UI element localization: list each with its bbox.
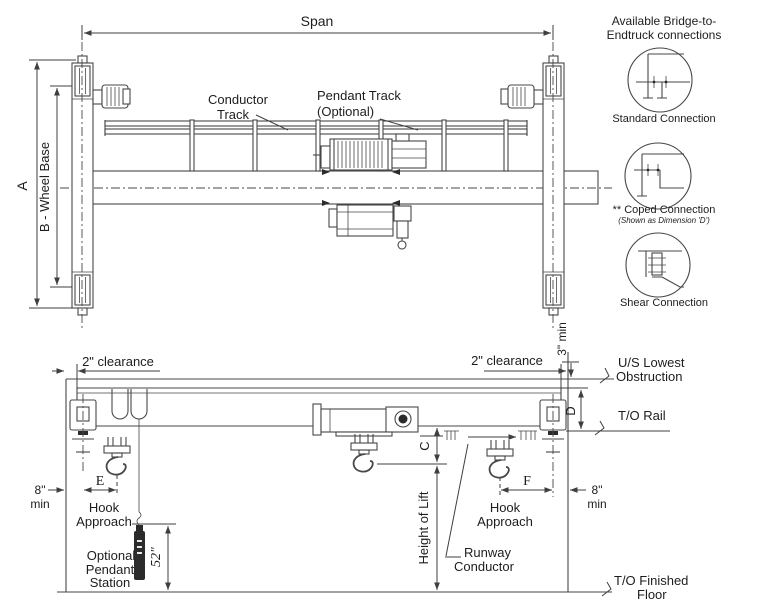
end-truck-left-elevation <box>70 394 96 472</box>
trolley-plan <box>322 200 411 249</box>
hook-icon <box>351 434 377 472</box>
min3-dimension: 3" min <box>555 322 579 377</box>
svg-text:Floor: Floor <box>637 587 667 602</box>
svg-text:Track: Track <box>217 107 250 122</box>
to-finished-floor-callout: T/O Finished Floor <box>602 573 688 602</box>
shear-connection-label: Shear Connection <box>620 297 708 309</box>
shear-connection-detail: Shear Connection <box>620 233 708 309</box>
pendant-station <box>134 525 145 580</box>
conductor-track-plan <box>105 120 527 171</box>
crane-diagram: Span A B - Wheel Base Conductor Track Pe… <box>0 0 768 613</box>
svg-text:Conductor: Conductor <box>208 92 269 107</box>
to-rail-callout: T/O Rail <box>566 408 670 435</box>
connections-heading-line1: Available Bridge-to- <box>612 14 717 28</box>
dimension-wheel-base: B - Wheel Base <box>37 86 72 287</box>
hook-icon <box>487 440 513 478</box>
svg-text:2" clearance: 2" clearance <box>82 354 154 369</box>
coped-connection-note: (Shown as Dimension 'D') <box>618 216 710 225</box>
height-of-lift-dimension: Height of Lift <box>416 466 437 590</box>
standard-connection-label: Standard Connection <box>612 113 715 125</box>
bridge-girder-plan <box>75 171 598 204</box>
connections-heading-line2: Endtruck connections <box>607 28 722 42</box>
hoist-trolley-elevation <box>313 404 418 436</box>
plan-view: Span A B - Wheel Base Conductor Track Pe… <box>14 13 612 330</box>
clearance-left-dimension: 2" clearance <box>52 354 160 390</box>
hook-icon <box>104 437 130 475</box>
us-lowest-obstruction-callout: U/S Lowest Obstruction <box>600 355 685 384</box>
svg-text:Obstruction: Obstruction <box>616 369 682 384</box>
svg-text:C: C <box>417 441 432 450</box>
hook-approach-left-label: Hook Approach <box>76 500 132 529</box>
hoist-plan <box>313 134 426 175</box>
span-dimension: Span <box>82 13 553 40</box>
svg-text:T/O Finished: T/O Finished <box>614 573 688 588</box>
end-truck-left-plan <box>72 56 93 315</box>
hook-approach-right-label: Hook Approach <box>477 500 533 529</box>
svg-text:(Optional): (Optional) <box>317 104 374 119</box>
svg-text:min: min <box>587 497 606 511</box>
dimension-e: E <box>84 474 117 496</box>
svg-text:2" clearance: 2" clearance <box>471 353 543 368</box>
label-dim-a: A <box>14 181 30 191</box>
label-wheel-base: B - Wheel Base <box>37 142 52 232</box>
svg-text:Conductor: Conductor <box>454 559 515 574</box>
svg-text:T/O Rail: T/O Rail <box>618 408 666 423</box>
svg-text:Approach: Approach <box>76 514 132 529</box>
pendant-cable <box>137 419 141 525</box>
label-span: Span <box>301 13 334 29</box>
svg-text:Approach: Approach <box>477 514 533 529</box>
svg-text:52": 52" <box>149 547 164 567</box>
svg-text:Hook: Hook <box>89 500 120 515</box>
svg-text:8": 8" <box>35 483 46 497</box>
clearance-right-dimension: 2" clearance <box>471 353 566 390</box>
svg-text:3" min: 3" min <box>555 322 569 356</box>
svg-text:Hook: Hook <box>490 500 521 515</box>
svg-text:Station: Station <box>90 575 130 590</box>
min8-right: 8" min <box>570 483 607 511</box>
svg-text:F: F <box>523 474 531 489</box>
svg-text:E: E <box>96 474 105 489</box>
svg-text:8": 8" <box>592 483 603 497</box>
svg-text:Optional: Optional <box>87 548 136 563</box>
coped-connection-detail: ** Coped Connection (Shown as Dimension … <box>613 143 716 225</box>
diagram-canvas: Span A B - Wheel Base Conductor Track Pe… <box>0 0 768 613</box>
svg-text:U/S Lowest: U/S Lowest <box>618 355 685 370</box>
festoon-loops <box>112 389 147 419</box>
svg-text:Pendant Track: Pendant Track <box>317 88 401 103</box>
bridge-drive-motor-left <box>93 85 130 108</box>
svg-text:min: min <box>30 497 49 511</box>
end-truck-right-plan <box>543 56 564 315</box>
min8-left: 8" min <box>30 483 64 511</box>
pendant-station-label: Optional Pendant Station <box>86 548 136 590</box>
coped-connection-label: ** Coped Connection <box>613 204 716 216</box>
bridge-drive-motor-right <box>501 85 543 108</box>
svg-text:Height of Lift: Height of Lift <box>416 491 431 564</box>
runway-conductor-label: Runway <box>464 545 511 560</box>
svg-text:D: D <box>563 406 578 415</box>
standard-connection-detail: Standard Connection <box>612 48 715 125</box>
connections-panel: Available Bridge-to- Endtruck connection… <box>607 14 722 309</box>
elevation-view: 2" clearance 2" clearance 3" min D C <box>30 322 688 602</box>
dimension-f: F <box>500 474 552 496</box>
